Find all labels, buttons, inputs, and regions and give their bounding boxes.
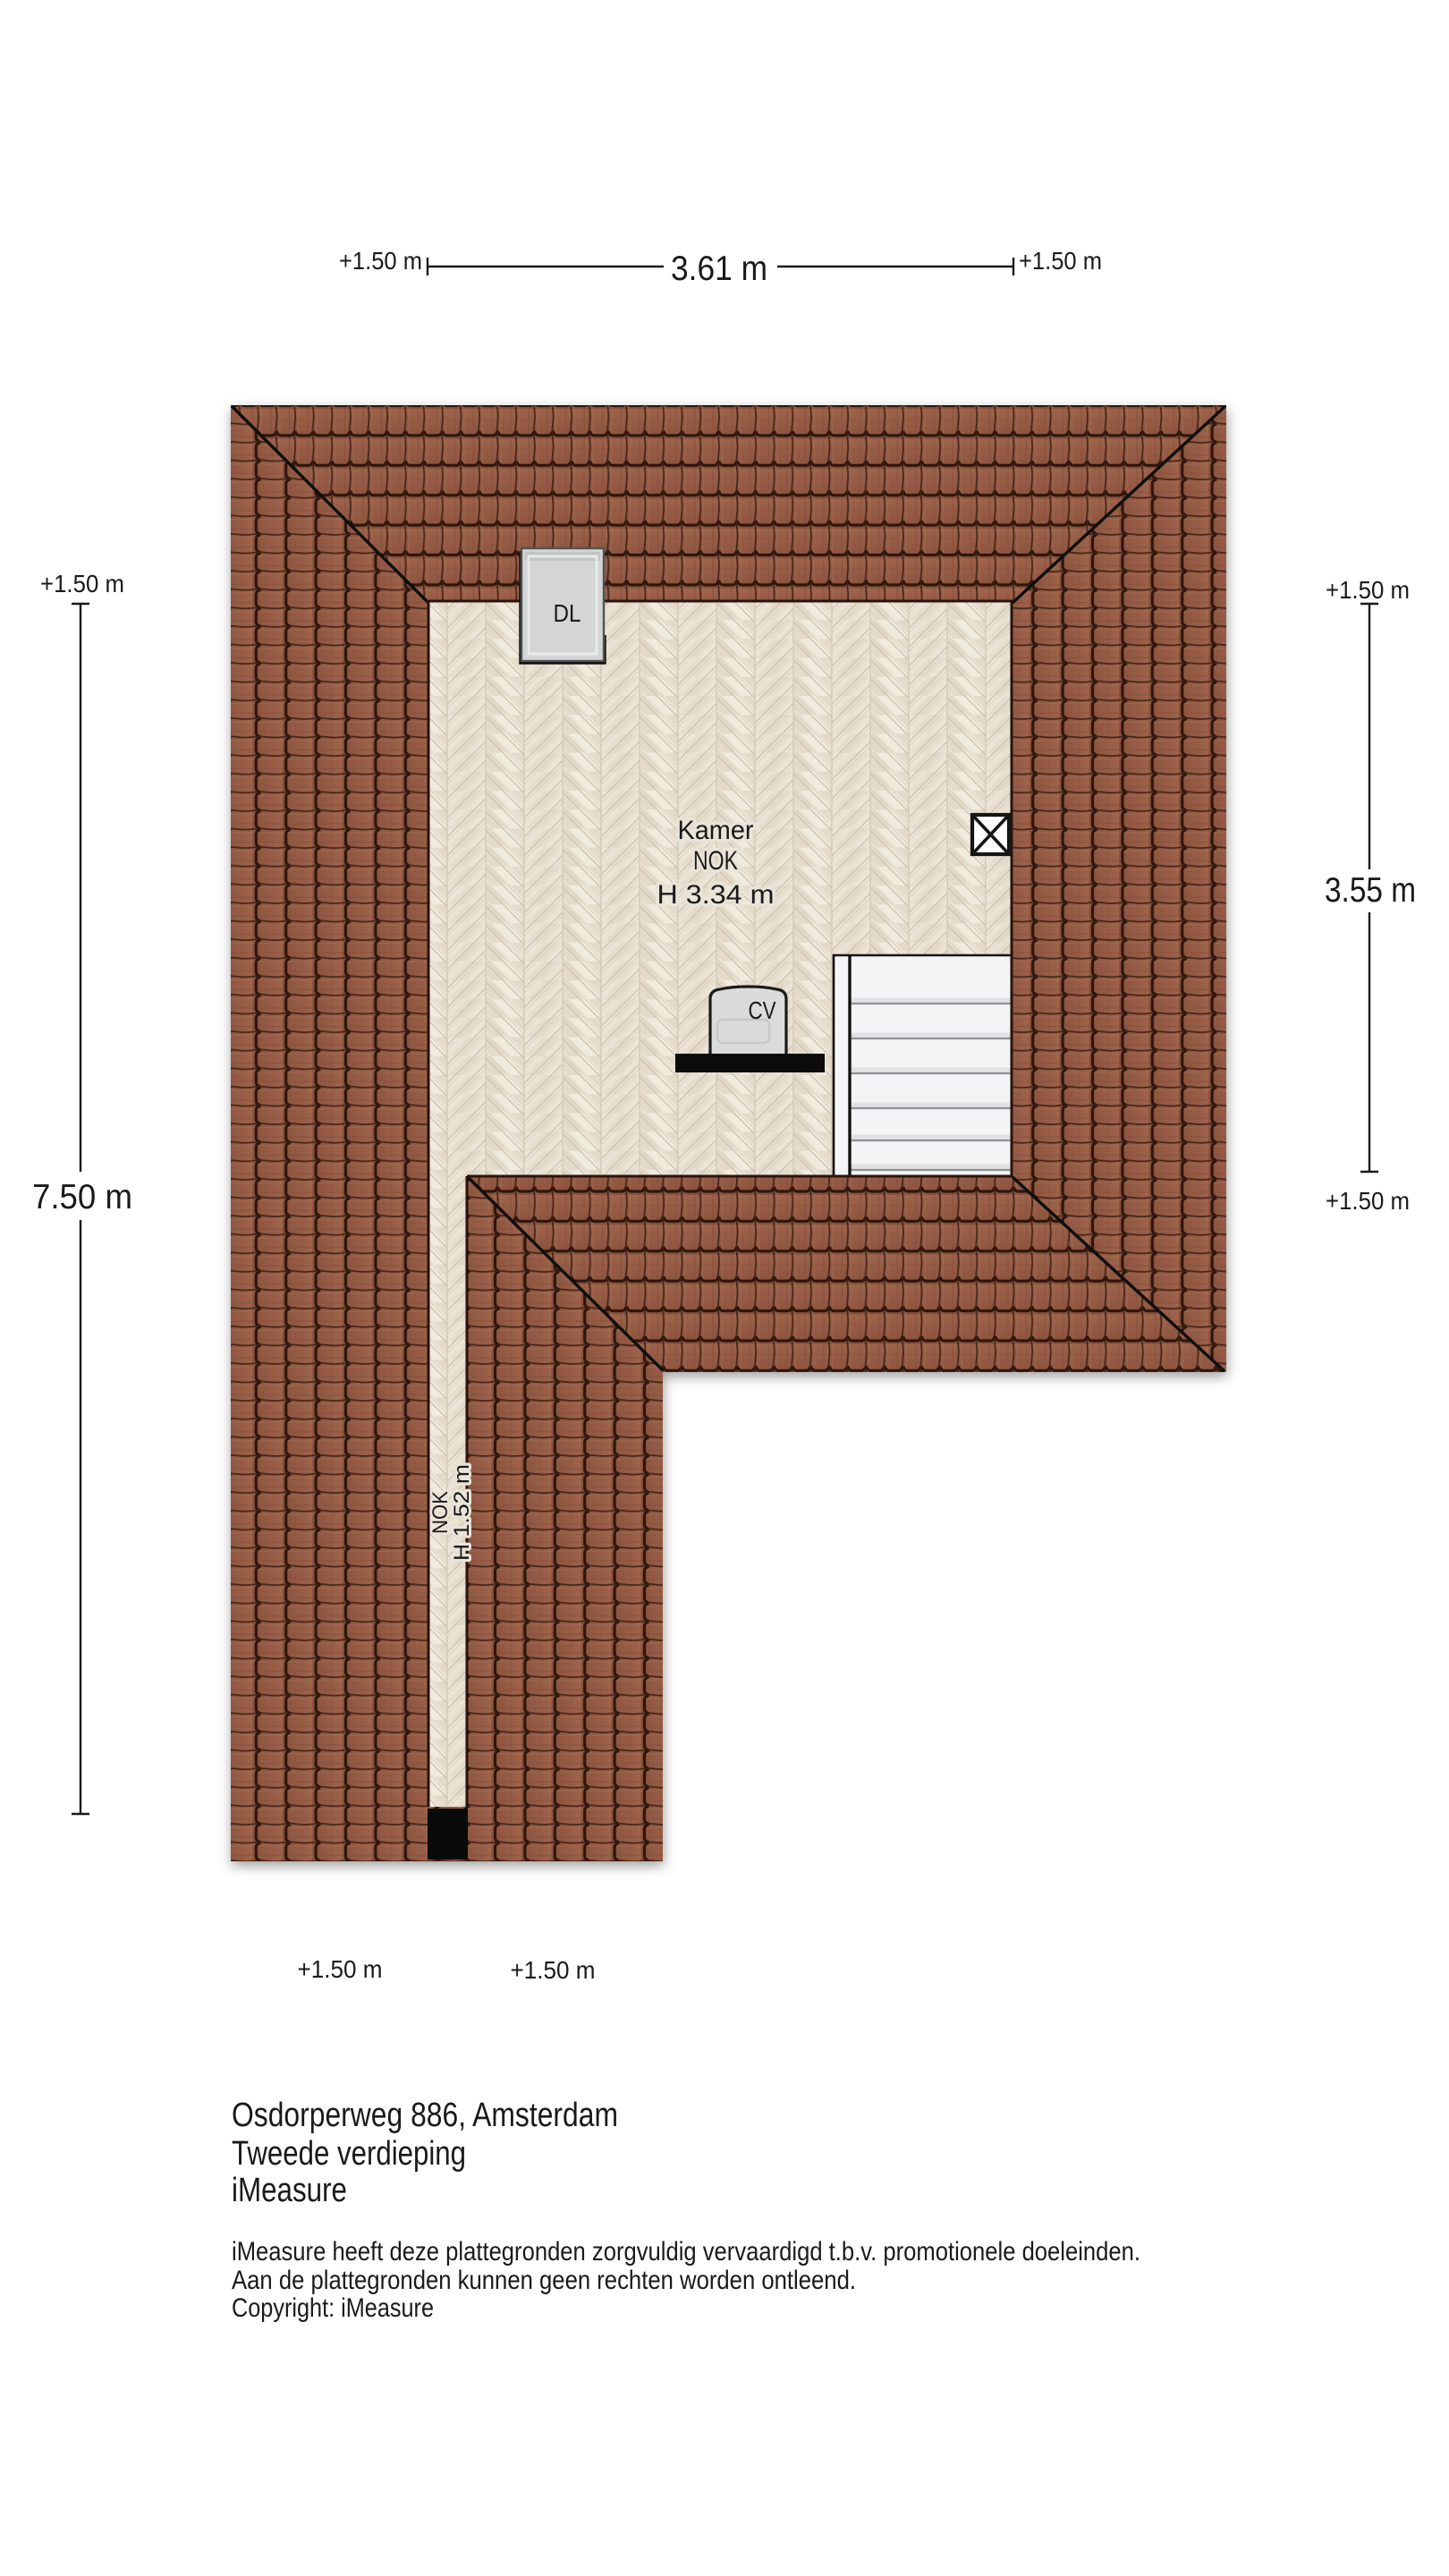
svg-text:Tweede verdieping: Tweede verdieping	[232, 2135, 466, 2173]
svg-text:Osdorperweg 886, Amsterdam: Osdorperweg 886, Amsterdam	[232, 2097, 618, 2134]
svg-text:+1.50 m: +1.50 m	[1019, 247, 1102, 275]
svg-text:iMeasure: iMeasure	[232, 2172, 347, 2209]
svg-text:7.50 m: 7.50 m	[32, 1178, 132, 1216]
svg-text:iMeasure heeft deze plattegron: iMeasure heeft deze plattegronden zorgvu…	[232, 2237, 1140, 2267]
svg-text:+1.50 m: +1.50 m	[298, 1955, 383, 1983]
svg-text:+1.50 m: +1.50 m	[511, 1956, 596, 1984]
svg-text:+1.50 m: +1.50 m	[339, 247, 422, 275]
svg-text:NOK: NOK	[428, 1491, 453, 1534]
svg-text:H 1.52 m: H 1.52 m	[450, 1464, 474, 1561]
svg-text:NOK: NOK	[693, 846, 738, 876]
svg-text:3.55 m: 3.55 m	[1325, 871, 1416, 910]
svg-text:Copyright: iMeasure: Copyright: iMeasure	[232, 2293, 434, 2323]
svg-text:+1.50 m: +1.50 m	[1326, 1187, 1410, 1215]
svg-text:Kamer: Kamer	[678, 816, 754, 845]
svg-text:+1.50 m: +1.50 m	[1326, 576, 1410, 604]
svg-text:DL: DL	[554, 599, 581, 627]
svg-text:CV: CV	[749, 996, 776, 1024]
svg-text:3.61 m: 3.61 m	[671, 250, 767, 288]
svg-text:+1.50 m: +1.50 m	[40, 570, 124, 597]
svg-text:Aan de plattegronden kunnen ge: Aan de plattegronden kunnen geen rechten…	[232, 2266, 856, 2295]
svg-text:H 3.34 m: H 3.34 m	[657, 880, 775, 910]
